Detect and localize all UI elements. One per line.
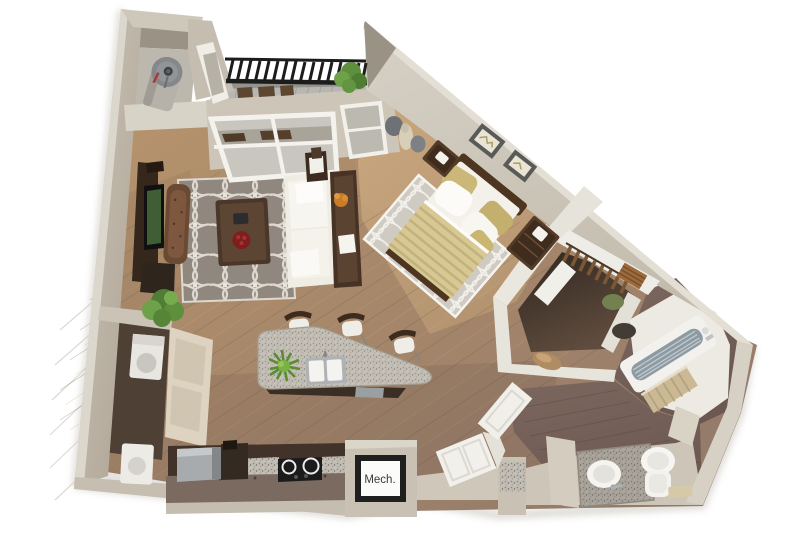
svg-text:Mech.: Mech. [364,474,395,486]
